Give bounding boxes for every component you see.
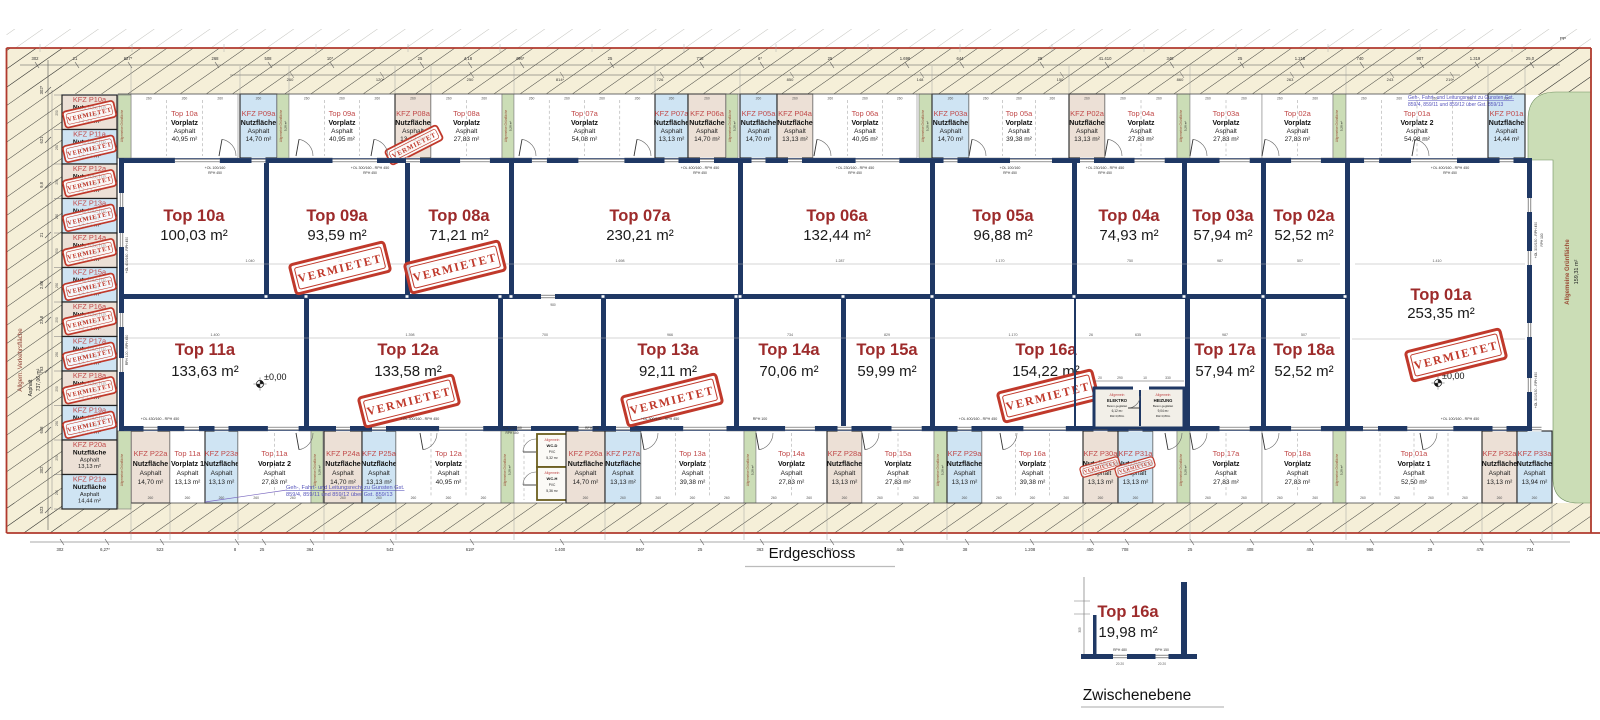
svg-text:4,18: 4,18 [464, 56, 473, 61]
svg-text:WC-D: WC-D [547, 443, 558, 448]
svg-text:Asphalt: Asphalt [332, 470, 354, 477]
svg-text:408: 408 [1247, 547, 1255, 552]
svg-text:KFZ P08a: KFZ P08a [396, 109, 431, 118]
svg-text:260: 260 [792, 97, 798, 101]
svg-text:260: 260 [374, 97, 380, 101]
svg-text:Nutzfläche: Nutzfläche [1517, 461, 1553, 468]
svg-text:5,32 m²: 5,32 m² [546, 456, 558, 460]
svg-text:750: 750 [1127, 259, 1133, 263]
svg-text:28: 28 [1428, 547, 1433, 552]
svg-text:1.319: 1.319 [1470, 56, 1481, 61]
svg-text:Vorplatz: Vorplatz [171, 120, 199, 127]
svg-text:507: 507 [1297, 259, 1303, 263]
svg-text:260: 260 [862, 97, 868, 101]
svg-text:260: 260 [583, 496, 589, 500]
svg-text:25: 25 [418, 56, 423, 61]
svg-text:26: 26 [1089, 333, 1093, 337]
svg-text:14,44 m²: 14,44 m² [78, 499, 101, 505]
svg-text:13,13 m²: 13,13 m² [610, 479, 636, 486]
svg-text:40,95 m²: 40,95 m² [172, 136, 198, 143]
svg-text:25: 25 [260, 547, 265, 552]
svg-text:260: 260 [635, 97, 641, 101]
svg-text:Nutzfläche: Nutzfläche [361, 461, 397, 468]
svg-text:404: 404 [1307, 547, 1315, 552]
svg-text:52,52 m²: 52,52 m² [1274, 227, 1333, 244]
svg-text:260: 260 [806, 496, 812, 500]
svg-text:KFZ P30a: KFZ P30a [1084, 449, 1119, 458]
svg-text:KFZ P06a: KFZ P06a [690, 109, 725, 118]
svg-text:450: 450 [1087, 547, 1095, 552]
svg-text:Asphalt: Asphalt [80, 458, 100, 464]
svg-text:1.400: 1.400 [211, 333, 220, 337]
svg-text:Allgemein: Allgemein [545, 471, 560, 475]
svg-text:Asphalt: Asphalt [28, 379, 34, 396]
svg-text:Asphalt: Asphalt [940, 128, 962, 135]
svg-text:230,21 m²: 230,21 m² [606, 227, 674, 244]
svg-text:5,28 m²: 5,28 m² [509, 121, 513, 131]
svg-text:330: 330 [1165, 376, 1171, 380]
svg-text:5,28 m²: 5,28 m² [941, 465, 945, 475]
svg-text:Geh-, Fahrt- und Leitungsrecht: Geh-, Fahrt- und Leitungsrecht zu Gunste… [1408, 95, 1514, 101]
svg-text:Asphalt: Asphalt [211, 470, 233, 477]
svg-text:250: 250 [55, 179, 59, 185]
svg-text:19,98 m²: 19,98 m² [1098, 624, 1157, 641]
svg-text:Top 18a: Top 18a [1284, 449, 1312, 458]
svg-text:Beton geglättet: Beton geglättet [1107, 404, 1127, 408]
svg-text:Allgemeine Grünfläche: Allgemeine Grünfläche [1179, 110, 1183, 142]
svg-text:59,99 m²: 59,99 m² [857, 363, 916, 380]
svg-text:Allgemeine Grünfläche: Allgemeine Grünfläche [936, 454, 940, 486]
svg-text:260: 260 [655, 496, 661, 500]
svg-text:219*: 219* [1446, 77, 1455, 82]
svg-text:250: 250 [55, 110, 59, 116]
svg-text:253,35 m²: 253,35 m² [1407, 305, 1475, 322]
svg-text:KFZ P26a: KFZ P26a [569, 449, 604, 458]
svg-text:260: 260 [704, 97, 710, 101]
svg-text:PVC: PVC [549, 483, 556, 487]
svg-text:+OL 230/160 - RPH 450: +OL 230/160 - RPH 450 [836, 166, 875, 170]
svg-text:987: 987 [1217, 259, 1223, 263]
svg-text:Top 15a: Top 15a [856, 341, 918, 359]
svg-text:Nutzfläche: Nutzfläche [1069, 120, 1105, 127]
svg-text:608: 608 [39, 426, 44, 434]
svg-text:74,93 m²: 74,93 m² [1099, 227, 1158, 244]
svg-text:250: 250 [55, 455, 59, 461]
svg-text:260: 260 [962, 496, 968, 500]
svg-text:1.170: 1.170 [1009, 333, 1018, 337]
svg-text:260: 260 [1205, 496, 1211, 500]
svg-text:Asphalt: Asphalt [661, 128, 683, 135]
svg-text:14,70 m²: 14,70 m² [694, 136, 720, 143]
svg-text:57,94 m²: 57,94 m² [1193, 227, 1252, 244]
svg-text:260: 260 [1241, 496, 1247, 500]
svg-text:27,83 m²: 27,83 m² [262, 479, 288, 486]
svg-text:13,13 m²: 13,13 m² [659, 136, 685, 143]
svg-text:734: 734 [1527, 547, 1535, 552]
svg-text:Allgemeine Grünfläche: Allgemeine Grünfläche [313, 454, 317, 486]
svg-text:+OL 300/160 - RPH 450: +OL 300/160 - RPH 450 [401, 417, 440, 421]
svg-text:±0,00: ±0,00 [264, 372, 286, 382]
svg-text:RPH 100: RPH 100 [753, 417, 768, 421]
svg-text:6,12 m²: 6,12 m² [1112, 409, 1123, 413]
svg-text:1.170: 1.170 [996, 259, 1005, 263]
svg-text:KFZ P21a: KFZ P21a [73, 475, 107, 484]
svg-text:Nutzfläche: Nutzfläche [933, 120, 969, 127]
svg-text:Top 07a: Top 07a [571, 109, 599, 118]
svg-text:Top 11a: Top 11a [174, 449, 201, 458]
svg-text:14,70 m²: 14,70 m² [138, 479, 164, 486]
svg-text:92,11 m²: 92,11 m² [639, 363, 697, 380]
svg-text:71,21 m²: 71,21 m² [429, 227, 488, 244]
svg-text:Top 12a: Top 12a [435, 449, 463, 458]
svg-text:Nutzfläche: Nutzfläche [1489, 120, 1525, 127]
svg-text:Allgemeine Grünfläche: Allgemeine Grünfläche [1179, 454, 1183, 486]
svg-text:RPH 450: RPH 450 [848, 171, 862, 175]
svg-text:WC-H: WC-H [547, 476, 558, 481]
svg-text:132,44 m²: 132,44 m² [803, 227, 871, 244]
svg-text:RPH 100 - RPH 450: RPH 100 - RPH 450 [125, 335, 129, 366]
svg-text:25: 25 [608, 56, 613, 61]
svg-text:Erdgeschoss: Erdgeschoss [769, 545, 856, 562]
svg-text:Allgemeine Grünfläche: Allgemeine Grünfläche [1335, 454, 1339, 486]
svg-text:Top 16a: Top 16a [1019, 449, 1047, 458]
svg-text:814*: 814* [556, 77, 565, 82]
svg-text:635: 635 [1135, 333, 1141, 337]
svg-text:Top 01a: Top 01a [1410, 286, 1472, 304]
svg-text:Asphalt: Asphalt [368, 470, 390, 477]
svg-text:39,38 m²: 39,38 m² [1020, 479, 1046, 486]
svg-text:Nutzfläche: Nutzfläche [1482, 461, 1518, 468]
svg-text:260: 260 [620, 496, 626, 500]
svg-text:ELEKTRO: ELEKTRO [1107, 398, 1128, 403]
svg-text:Geh-, Fahrt- und Leitungsrecht: Geh-, Fahrt- und Leitungsrecht zu Gunste… [286, 485, 405, 491]
svg-text:10: 10 [1143, 376, 1147, 380]
svg-text:260: 260 [146, 97, 152, 101]
svg-text:859/4, 859/11 und 859/12 über: 859/4, 859/11 und 859/12 über Gst. 859/1… [286, 492, 393, 498]
svg-text:740: 740 [1357, 56, 1365, 61]
svg-text:260: 260 [1428, 496, 1434, 500]
svg-text:38: 38 [963, 547, 968, 552]
svg-text:260: 260 [253, 496, 259, 500]
svg-text:260: 260 [724, 496, 730, 500]
svg-text:260: 260 [1312, 97, 1318, 101]
svg-text:+OL 230/160 - RPH 450: +OL 230/160 - RPH 450 [1086, 166, 1125, 170]
svg-text:5,28 m²: 5,28 m² [926, 121, 930, 131]
svg-text:260: 260 [1120, 97, 1126, 101]
svg-text:54,08 m²: 54,08 m² [572, 136, 598, 143]
svg-text:Asphalt: Asphalt [834, 470, 856, 477]
svg-text:27,83 m²: 27,83 m² [779, 479, 805, 486]
svg-text:260: 260 [756, 97, 762, 101]
svg-text:Asphalt: Asphalt [248, 128, 270, 135]
svg-text:Top 16a: Top 16a [1015, 341, 1077, 359]
svg-text:260: 260 [1205, 97, 1211, 101]
svg-text:KFZ P33a: KFZ P33a [1518, 449, 1553, 458]
svg-text:260: 260 [1396, 97, 1402, 101]
svg-text:260: 260 [913, 496, 919, 500]
svg-text:260: 260 [669, 97, 675, 101]
svg-text:RPH 150: RPH 150 [1155, 648, 1169, 652]
svg-text:RPH 450: RPH 450 [1003, 171, 1017, 175]
svg-text:260: 260 [410, 97, 416, 101]
svg-text:Vorplatz 1: Vorplatz 1 [171, 461, 204, 468]
svg-text:260: 260 [529, 97, 535, 101]
svg-text:Top 14a: Top 14a [778, 449, 806, 458]
svg-text:260: 260 [1394, 496, 1400, 500]
svg-text:627*: 627* [124, 56, 133, 61]
svg-text:PP: PP [1560, 36, 1566, 41]
svg-text:966: 966 [667, 333, 673, 337]
svg-text:25: 25 [1238, 56, 1243, 61]
svg-text:27,83 m²: 27,83 m² [1128, 136, 1154, 143]
svg-text:966: 966 [1367, 547, 1375, 552]
svg-text:260: 260 [827, 97, 833, 101]
svg-text:Asphalt: Asphalt [331, 128, 353, 135]
svg-text:Asphalt: Asphalt [140, 470, 162, 477]
svg-text:618*: 618* [466, 547, 475, 552]
svg-text:13,13 m²: 13,13 m² [1487, 479, 1513, 486]
svg-text:737,06 m²: 737,06 m² [36, 368, 42, 391]
svg-text:Top 01a: Top 01a [1401, 449, 1429, 458]
svg-text:Top 06a: Top 06a [806, 207, 868, 225]
svg-text:860: 860 [1177, 77, 1184, 82]
svg-text:508: 508 [265, 56, 273, 61]
svg-text:13,13 m²: 13,13 m² [175, 479, 201, 486]
svg-text:260: 260 [1241, 97, 1247, 101]
svg-text:27,83 m²: 27,83 m² [1213, 479, 1239, 486]
svg-text:Vorplatz: Vorplatz [435, 461, 463, 468]
svg-text:Top 16a: Top 16a [1097, 603, 1159, 621]
svg-text:Nutzfläche: Nutzfläche [73, 450, 107, 457]
svg-text:Top 09a: Top 09a [329, 109, 357, 118]
svg-text:+OL 300/160 - RPH 450: +OL 300/160 - RPH 450 [641, 417, 680, 421]
svg-text:Nutzfläche: Nutzfläche [605, 461, 641, 468]
svg-text:260: 260 [1098, 496, 1104, 500]
svg-text:260: 260 [1277, 97, 1283, 101]
svg-text:RPH 450: RPH 450 [363, 171, 377, 175]
svg-text:25: 25 [1038, 56, 1043, 61]
svg-text:5,28 m²: 5,28 m² [733, 121, 737, 131]
svg-text:159,31 m²: 159,31 m² [1574, 259, 1580, 284]
svg-text:57,94 m²: 57,94 m² [1195, 363, 1254, 380]
svg-text:54,08 m²: 54,08 m² [1404, 136, 1430, 143]
svg-text:14,70 m²: 14,70 m² [573, 479, 599, 486]
svg-text:859/4, 859/11 und 859/12 über: 859/4, 859/11 und 859/12 über Gst. 859/1… [1408, 102, 1503, 108]
svg-text:Nutzfläche: Nutzfläche [325, 461, 361, 468]
svg-text:260: 260 [481, 496, 487, 500]
svg-text:5,28 m²: 5,28 m² [508, 465, 512, 475]
svg-text:260: 260 [1360, 496, 1366, 500]
svg-text:RPH 450: RPH 450 [1098, 171, 1112, 175]
svg-text:260: 260 [256, 97, 262, 101]
svg-text:39,38 m²: 39,38 m² [1006, 136, 1032, 143]
svg-text:27,83 m²: 27,83 m² [454, 136, 480, 143]
svg-text:27,83 m²: 27,83 m² [1285, 136, 1311, 143]
svg-text:5,28 m²: 5,28 m² [284, 121, 288, 131]
svg-text:Vorplatz: Vorplatz [1005, 120, 1033, 127]
svg-text:1.410: 1.410 [1433, 259, 1442, 263]
svg-text:PVC: PVC [549, 450, 556, 454]
svg-text:Allgemeine Grünfläche: Allgemeine Grünfläche [1565, 239, 1571, 305]
svg-text:150: 150 [1057, 77, 1064, 82]
svg-text:25: 25 [828, 56, 833, 61]
svg-text:726: 726 [657, 77, 664, 82]
svg-text:Beton geglättet: Beton geglättet [1153, 404, 1173, 408]
svg-text:543: 543 [387, 547, 395, 552]
svg-text:9,8: 9,8 [39, 181, 44, 187]
svg-text:KFZ P02a: KFZ P02a [1070, 109, 1105, 118]
svg-text:41.410: 41.410 [1099, 56, 1112, 61]
svg-text:Top 12a: Top 12a [377, 341, 439, 359]
svg-text:KFZ P09a: KFZ P09a [242, 109, 277, 118]
svg-text:850: 850 [787, 77, 794, 82]
svg-text:260: 260 [877, 496, 883, 500]
svg-text:Allgem. Verkehrsfläche: Allgem. Verkehrsfläche [17, 328, 24, 392]
svg-text:13,13 m²: 13,13 m² [782, 136, 808, 143]
svg-text:KFZ P04a: KFZ P04a [778, 109, 813, 118]
svg-text:Top 02a: Top 02a [1273, 207, 1335, 225]
svg-text:718: 718 [697, 56, 705, 61]
svg-text:133,63 m²: 133,63 m² [171, 363, 239, 380]
svg-text:305: 305 [1078, 627, 1082, 633]
svg-text:260: 260 [1133, 496, 1139, 500]
svg-text:1.287: 1.287 [836, 259, 845, 263]
svg-text:1.398: 1.398 [406, 333, 415, 337]
svg-text:263: 263 [1287, 77, 1294, 82]
svg-text:Top 13a: Top 13a [637, 341, 699, 359]
svg-text:Asphalt: Asphalt [682, 470, 704, 477]
svg-text:KFZ P29a: KFZ P29a [948, 449, 983, 458]
svg-text:Nutzfläche: Nutzfläche [827, 461, 863, 468]
svg-text:RPH 480: RPH 480 [1113, 648, 1127, 652]
svg-text:25: 25 [1188, 547, 1193, 552]
svg-text:250: 250 [55, 248, 59, 254]
svg-text:Asphalt: Asphalt [177, 470, 199, 477]
svg-text:Asphalt: Asphalt [748, 128, 770, 135]
svg-text:1.040: 1.040 [246, 259, 255, 263]
svg-text:260: 260 [948, 97, 954, 101]
svg-text:260: 260 [1361, 97, 1367, 101]
svg-text:+OL 100/160: +OL 100/160 [1000, 166, 1021, 170]
svg-text:Allgemeine Grünfläche: Allgemeine Grünfläche [921, 110, 925, 142]
svg-text:523: 523 [39, 506, 44, 514]
svg-text:KFZ P03a: KFZ P03a [934, 109, 969, 118]
svg-text:846*: 846* [636, 547, 645, 552]
svg-text:40,95 m²: 40,95 m² [329, 136, 355, 143]
svg-text:RH=3,80m: RH=3,80m [1110, 414, 1125, 418]
svg-text:Asphalt: Asphalt [174, 128, 196, 135]
svg-text:Zwischenebene: Zwischenebene [1083, 687, 1192, 704]
svg-text:Asphalt: Asphalt [612, 470, 634, 477]
svg-text:Top 07a: Top 07a [609, 207, 671, 225]
svg-text:20: 20 [1098, 376, 1102, 380]
svg-text:20 20: 20 20 [1116, 662, 1124, 666]
svg-text:Asphalt: Asphalt [80, 492, 100, 498]
svg-text:Asphalt: Asphalt [1008, 128, 1030, 135]
svg-text:KFZ P27a: KFZ P27a [606, 449, 641, 458]
svg-text:Nutzfläche: Nutzfläche [241, 120, 277, 127]
svg-text:HEIZUNG: HEIZUNG [1154, 398, 1173, 403]
svg-text:Asphalt: Asphalt [438, 470, 460, 477]
svg-text:Allgemein: Allgemein [545, 438, 560, 442]
svg-text:+OL 300/160 - RPH 450: +OL 300/160 - RPH 450 [351, 166, 390, 170]
svg-text:KFZ P05a: KFZ P05a [742, 109, 777, 118]
svg-text:Top 15a: Top 15a [885, 449, 913, 458]
svg-text:13,13 m²: 13,13 m² [952, 479, 978, 486]
svg-text:302: 302 [57, 547, 65, 552]
svg-text:93,59 m²: 93,59 m² [307, 227, 366, 244]
svg-text:Top 05a: Top 05a [972, 207, 1034, 225]
svg-text:363: 363 [757, 547, 765, 552]
svg-text:Top 03a: Top 03a [1213, 109, 1241, 118]
svg-text:700: 700 [542, 333, 548, 337]
svg-text:27,83 m²: 27,83 m² [1285, 479, 1311, 486]
svg-text:250: 250 [55, 214, 59, 220]
svg-text:250: 250 [55, 386, 59, 392]
svg-text:260: 260 [690, 496, 696, 500]
svg-text:KFZ P32a: KFZ P32a [1483, 449, 1518, 458]
svg-text:+OL 300/150 - RPH 450: +OL 300/150 - RPH 450 [1534, 372, 1538, 408]
svg-text:260: 260 [1277, 496, 1283, 500]
svg-text:13,13 m²: 13,13 m² [832, 479, 858, 486]
svg-text:Allgemeine Grünfläche: Allgemeine Grünfläche [503, 454, 507, 486]
svg-text:507: 507 [1301, 333, 1307, 337]
svg-text:RPH 100: RPH 100 [585, 426, 599, 430]
svg-text:Asphalt: Asphalt [1496, 128, 1518, 135]
svg-text:260: 260 [1049, 97, 1055, 101]
svg-text:Asphalt: Asphalt [854, 128, 876, 135]
svg-text:250: 250 [55, 490, 59, 496]
svg-text:Asphalt: Asphalt [954, 470, 976, 477]
svg-text:Nutzfläche: Nutzfläche [133, 461, 169, 468]
svg-text:Asphalt: Asphalt [575, 470, 597, 477]
svg-text:907: 907 [1417, 56, 1425, 61]
svg-text:Top 11a: Top 11a [175, 341, 236, 359]
svg-text:+OL 400/160 - RPH 450: +OL 400/160 - RPH 450 [959, 417, 998, 421]
svg-text:Nutzfläche: Nutzfläche [73, 484, 107, 491]
svg-text:14,44 m²: 14,44 m² [1494, 136, 1520, 143]
svg-text:KFZ P25a: KFZ P25a [362, 449, 397, 458]
svg-text:644: 644 [957, 56, 965, 61]
svg-text:RPH 450: RPH 450 [1443, 171, 1457, 175]
svg-text:KFZ P31a: KFZ P31a [1119, 449, 1154, 458]
svg-text:829: 829 [884, 333, 890, 337]
svg-text:290: 290 [1117, 376, 1123, 380]
svg-text:260: 260 [1063, 496, 1069, 500]
svg-text:Allgemeine Grünfläche: Allgemeine Grünfläche [746, 454, 750, 486]
svg-text:Top 17a: Top 17a [1194, 341, 1256, 359]
svg-text:Top 05a: Top 05a [1006, 109, 1034, 118]
svg-text:2.88: 2.88 [39, 280, 44, 289]
svg-text:9,04 m²: 9,04 m² [1158, 409, 1169, 413]
svg-text:KFZ P20a: KFZ P20a [73, 440, 107, 449]
svg-text:52,50 m²: 52,50 m² [1401, 479, 1427, 486]
svg-text:Top 02a: Top 02a [1284, 109, 1312, 118]
svg-text:133,58 m²: 133,58 m² [374, 363, 442, 380]
svg-text:Top 11a: Top 11a [261, 449, 288, 458]
svg-text:1.218: 1.218 [1295, 56, 1306, 61]
svg-text:708: 708 [1122, 547, 1130, 552]
svg-text:23,8: 23,8 [39, 315, 44, 324]
svg-text:250: 250 [55, 352, 59, 358]
svg-text:Top 09a: Top 09a [306, 207, 368, 225]
svg-text:448: 448 [897, 547, 905, 552]
svg-text:Top 14a: Top 14a [758, 341, 820, 359]
svg-text:+OL 100/160: +OL 100/160 [502, 426, 522, 430]
svg-text:14,70 m²: 14,70 m² [746, 136, 772, 143]
svg-text:496*: 496* [516, 56, 525, 61]
svg-text:260: 260 [842, 496, 848, 500]
